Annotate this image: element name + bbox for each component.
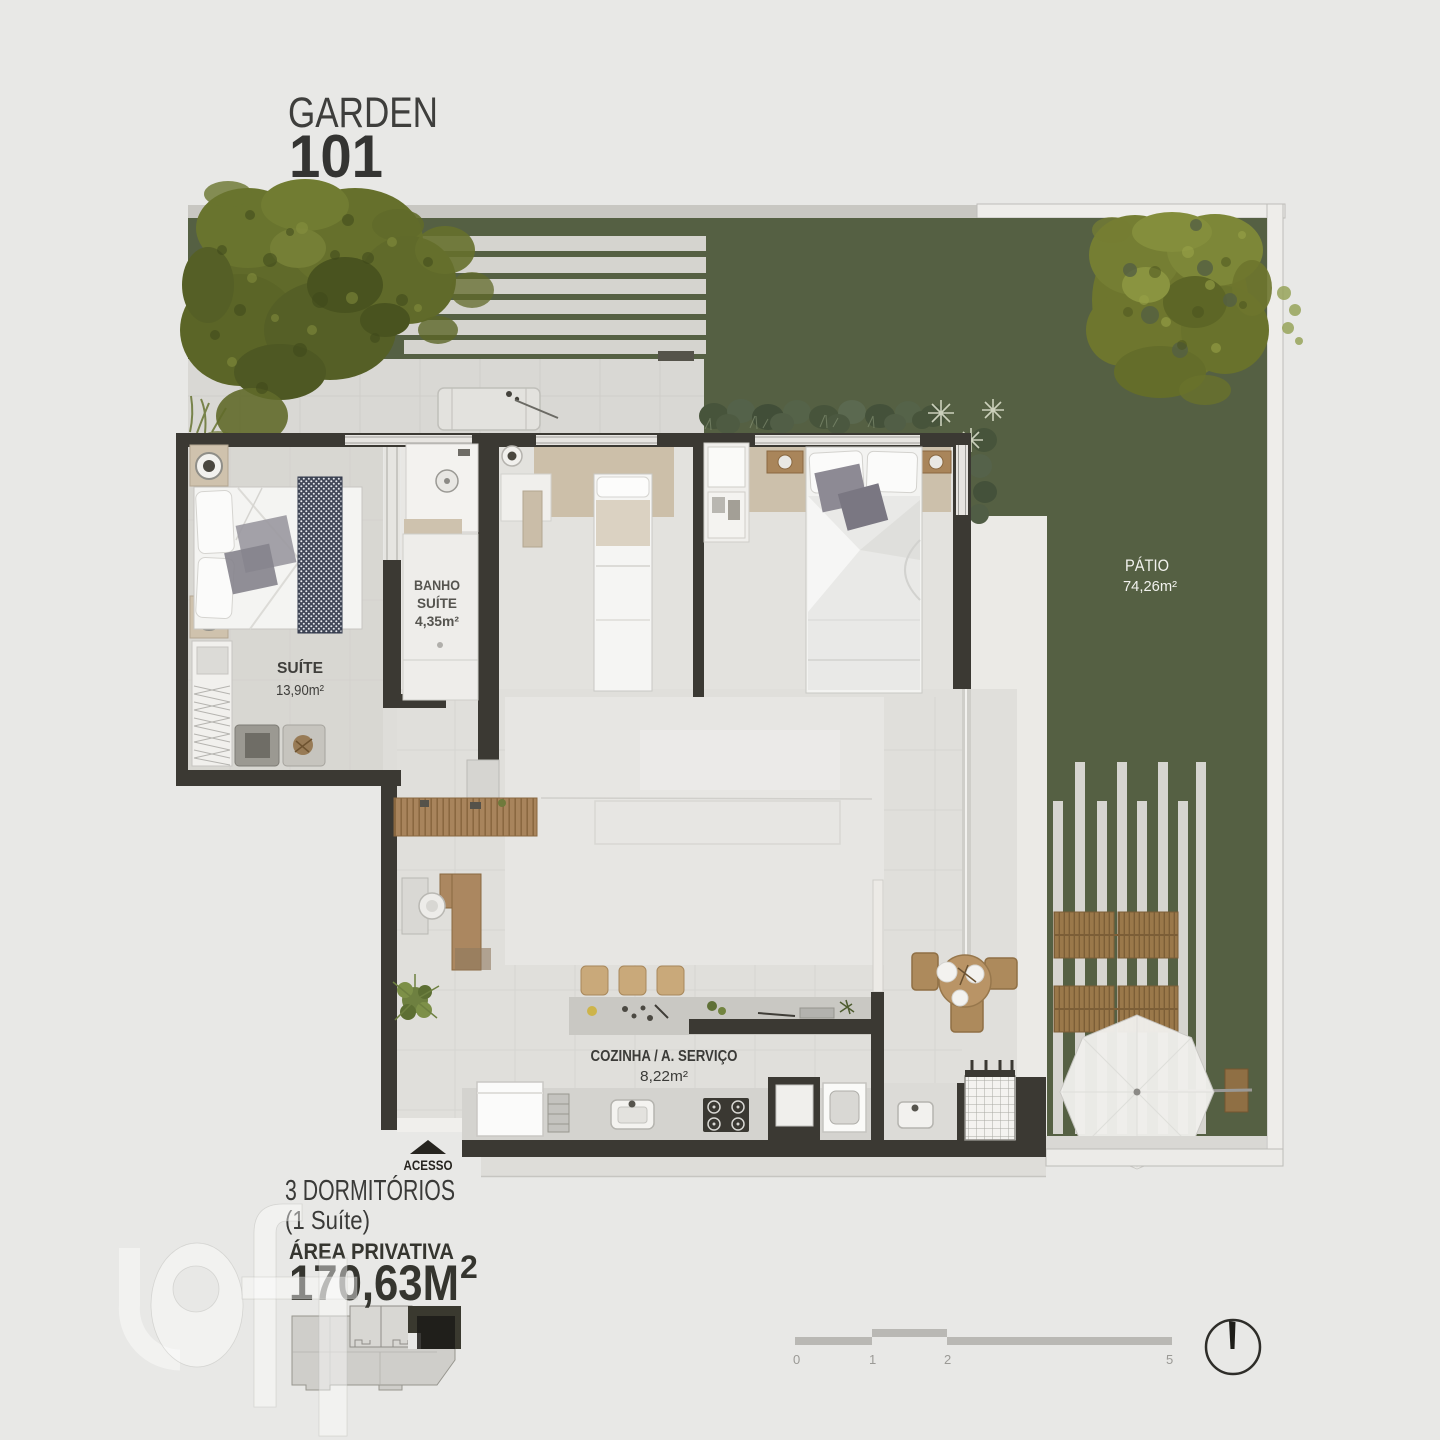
svg-text:ACESSO: ACESSO: [404, 1158, 453, 1173]
svg-text:0: 0: [793, 1352, 800, 1367]
svg-text:SUÍTE: SUÍTE: [277, 658, 323, 677]
svg-text:2: 2: [460, 1249, 478, 1285]
svg-text:SUÍTE: SUÍTE: [417, 596, 457, 611]
svg-text:COZINHA / A. SERVIÇO: COZINHA / A. SERVIÇO: [591, 1048, 738, 1065]
svg-text:4,35m²: 4,35m²: [415, 614, 460, 629]
svg-text:1: 1: [869, 1352, 876, 1367]
svg-text:PÁTIO: PÁTIO: [1125, 556, 1169, 575]
svg-text:5: 5: [1166, 1352, 1173, 1367]
svg-text:74,26m²: 74,26m²: [1123, 579, 1177, 595]
svg-text:3 DORMITÓRIOS: 3 DORMITÓRIOS: [285, 1174, 455, 1207]
svg-text:BANHO: BANHO: [414, 578, 460, 593]
svg-text:8,22m²: 8,22m²: [640, 1069, 688, 1085]
svg-text:2: 2: [944, 1352, 951, 1367]
svg-text:13,90m²: 13,90m²: [276, 683, 324, 699]
